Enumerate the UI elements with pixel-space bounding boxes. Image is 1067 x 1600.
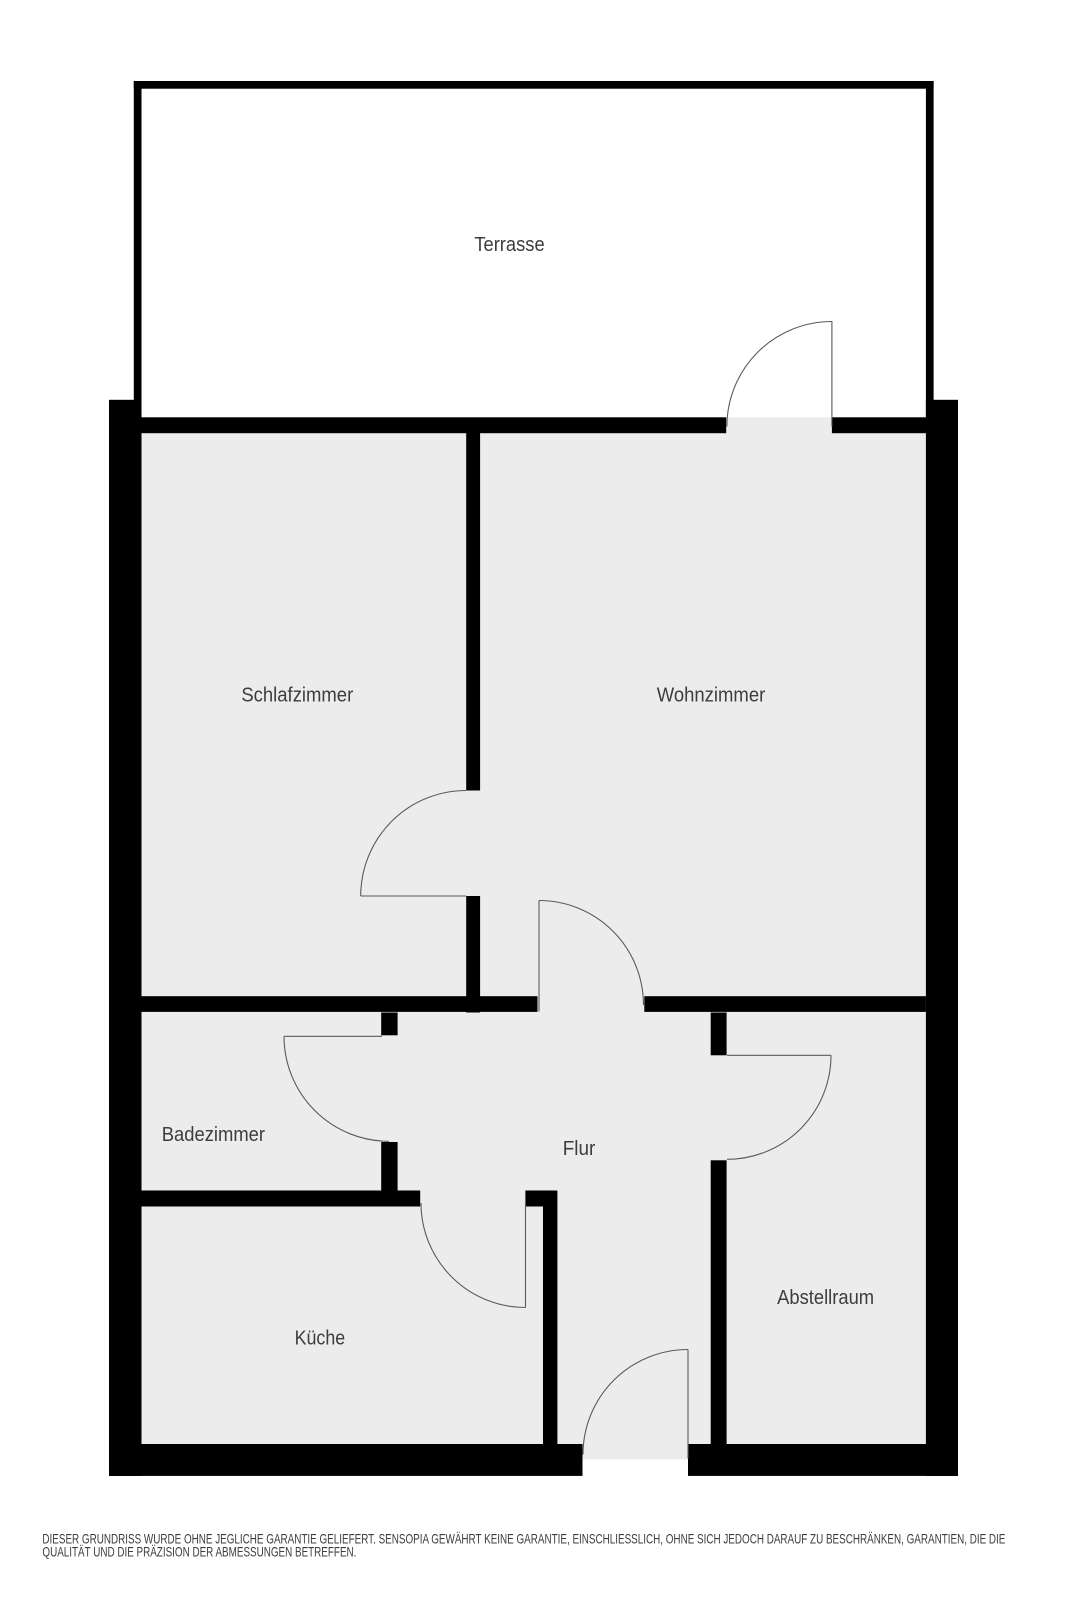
svg-text:QUALITÄT UND DIE PRÄZISION DER: QUALITÄT UND DIE PRÄZISION DER ABMESSUNG… — [42, 1544, 356, 1560]
svg-text:Terrasse: Terrasse — [474, 233, 544, 256]
svg-text:Badezimmer: Badezimmer — [162, 1123, 265, 1146]
svg-text:Küche: Küche — [295, 1327, 346, 1350]
svg-text:Flur: Flur — [563, 1137, 596, 1160]
svg-text:Abstellraum: Abstellraum — [777, 1286, 874, 1309]
svg-text:Wohnzimmer: Wohnzimmer — [657, 684, 766, 707]
svg-text:Schlafzimmer: Schlafzimmer — [241, 684, 353, 707]
